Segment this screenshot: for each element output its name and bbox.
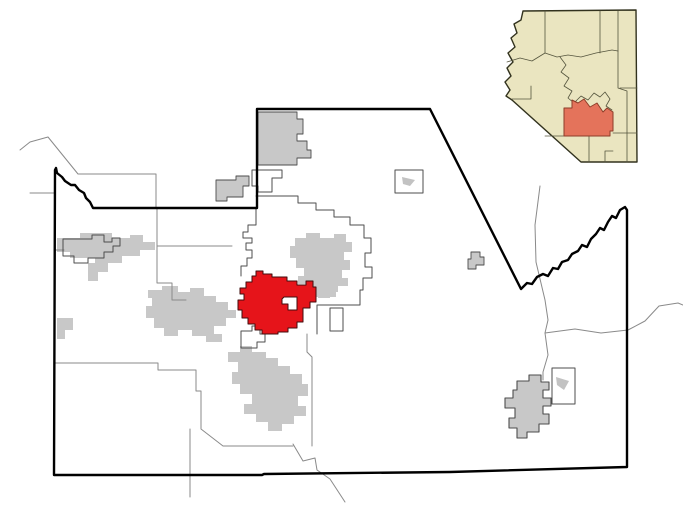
county-map-svg — [0, 0, 683, 512]
maricopa-south-area — [88, 263, 108, 281]
arizona-state-shape — [505, 10, 637, 162]
florence-rect-outline — [330, 308, 343, 331]
central-cluster-area — [146, 286, 236, 342]
east-branch-line — [545, 303, 683, 333]
south-cluster-area — [228, 346, 308, 431]
gold-canyon-area — [258, 112, 311, 165]
state-inset — [505, 10, 637, 162]
east-small-area — [468, 252, 484, 269]
west-of-notch-line — [241, 209, 256, 276]
east-long-line — [535, 186, 548, 333]
map-canvas — [0, 0, 683, 512]
west-village-area — [57, 318, 73, 339]
rectangle-strip-area — [556, 377, 569, 390]
east-south-line — [543, 333, 548, 380]
maricopa-city-area — [57, 233, 155, 263]
queen-valley-area — [216, 176, 249, 201]
san-manuel-area — [505, 375, 551, 438]
main-map — [20, 109, 683, 502]
airport-strip — [402, 177, 415, 186]
notch-boundary-line — [157, 209, 232, 246]
northwest-boundary-line — [20, 137, 156, 208]
